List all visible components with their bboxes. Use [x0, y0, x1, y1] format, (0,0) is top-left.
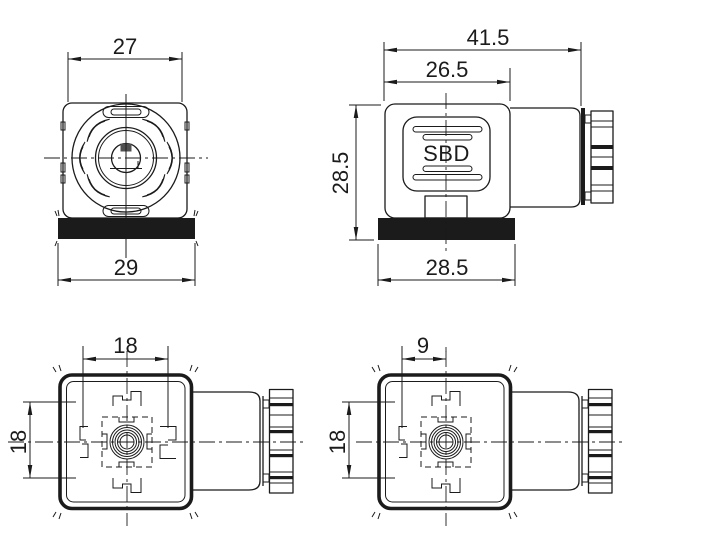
- dim-28_5-bottom-value: 28.5: [426, 255, 469, 280]
- brand-label: SBD: [423, 141, 470, 166]
- dim-41_5-value: 41.5: [467, 25, 510, 50]
- gland-flange: [581, 108, 585, 205]
- bottom-view-form-a: 18 18: [6, 333, 303, 526]
- grip-wing: [83, 174, 110, 201]
- dim-41_5-extension-lines: [384, 42, 581, 106]
- dim-18-left-value: 18: [6, 430, 31, 454]
- connector-technical-drawing: 27 29 41.5 26.5: [0, 0, 705, 559]
- dim-18-top-value: 18: [113, 333, 137, 358]
- vent-slot: [423, 166, 472, 172]
- gland-housing: [510, 108, 580, 207]
- knurl-lines: [591, 121, 613, 191]
- bottom-view-form-b: 9 18: [325, 333, 622, 526]
- dim-29-value: 29: [114, 255, 138, 280]
- dim-28_5-left-extension-lines: [349, 105, 381, 240]
- dim-26_5-value: 26.5: [426, 57, 469, 82]
- dim-18-left-value: 18: [325, 430, 350, 454]
- bottom-view-geometry: [356, 351, 622, 526]
- vent-slot: [413, 127, 482, 133]
- pin-contact-right: [160, 427, 176, 459]
- grip-wing: [83, 115, 110, 142]
- gasket-bar: [378, 218, 515, 240]
- gland-tab-top: [585, 115, 591, 123]
- dim-9-value: 9: [417, 333, 429, 358]
- grip-wing: [142, 115, 169, 142]
- dim-18-top-extension-lines: [83, 346, 168, 428]
- dim-27-value: 27: [113, 34, 137, 59]
- knurl-band: [591, 145, 613, 149]
- side-view: 41.5 26.5 SBD 28.5 28.5: [328, 25, 613, 286]
- connector-body: [63, 103, 187, 218]
- knurl-band: [591, 166, 613, 170]
- gasket-bar: [58, 218, 195, 239]
- dim-28_5-left-value: 28.5: [328, 152, 353, 195]
- vent-slot: [413, 175, 482, 181]
- vent-slot: [423, 135, 472, 141]
- grip-wing: [142, 174, 169, 201]
- front-view: 27 29: [44, 34, 208, 286]
- bottom-view-geometry: [37, 351, 303, 526]
- gland-tab-bottom: [585, 192, 591, 200]
